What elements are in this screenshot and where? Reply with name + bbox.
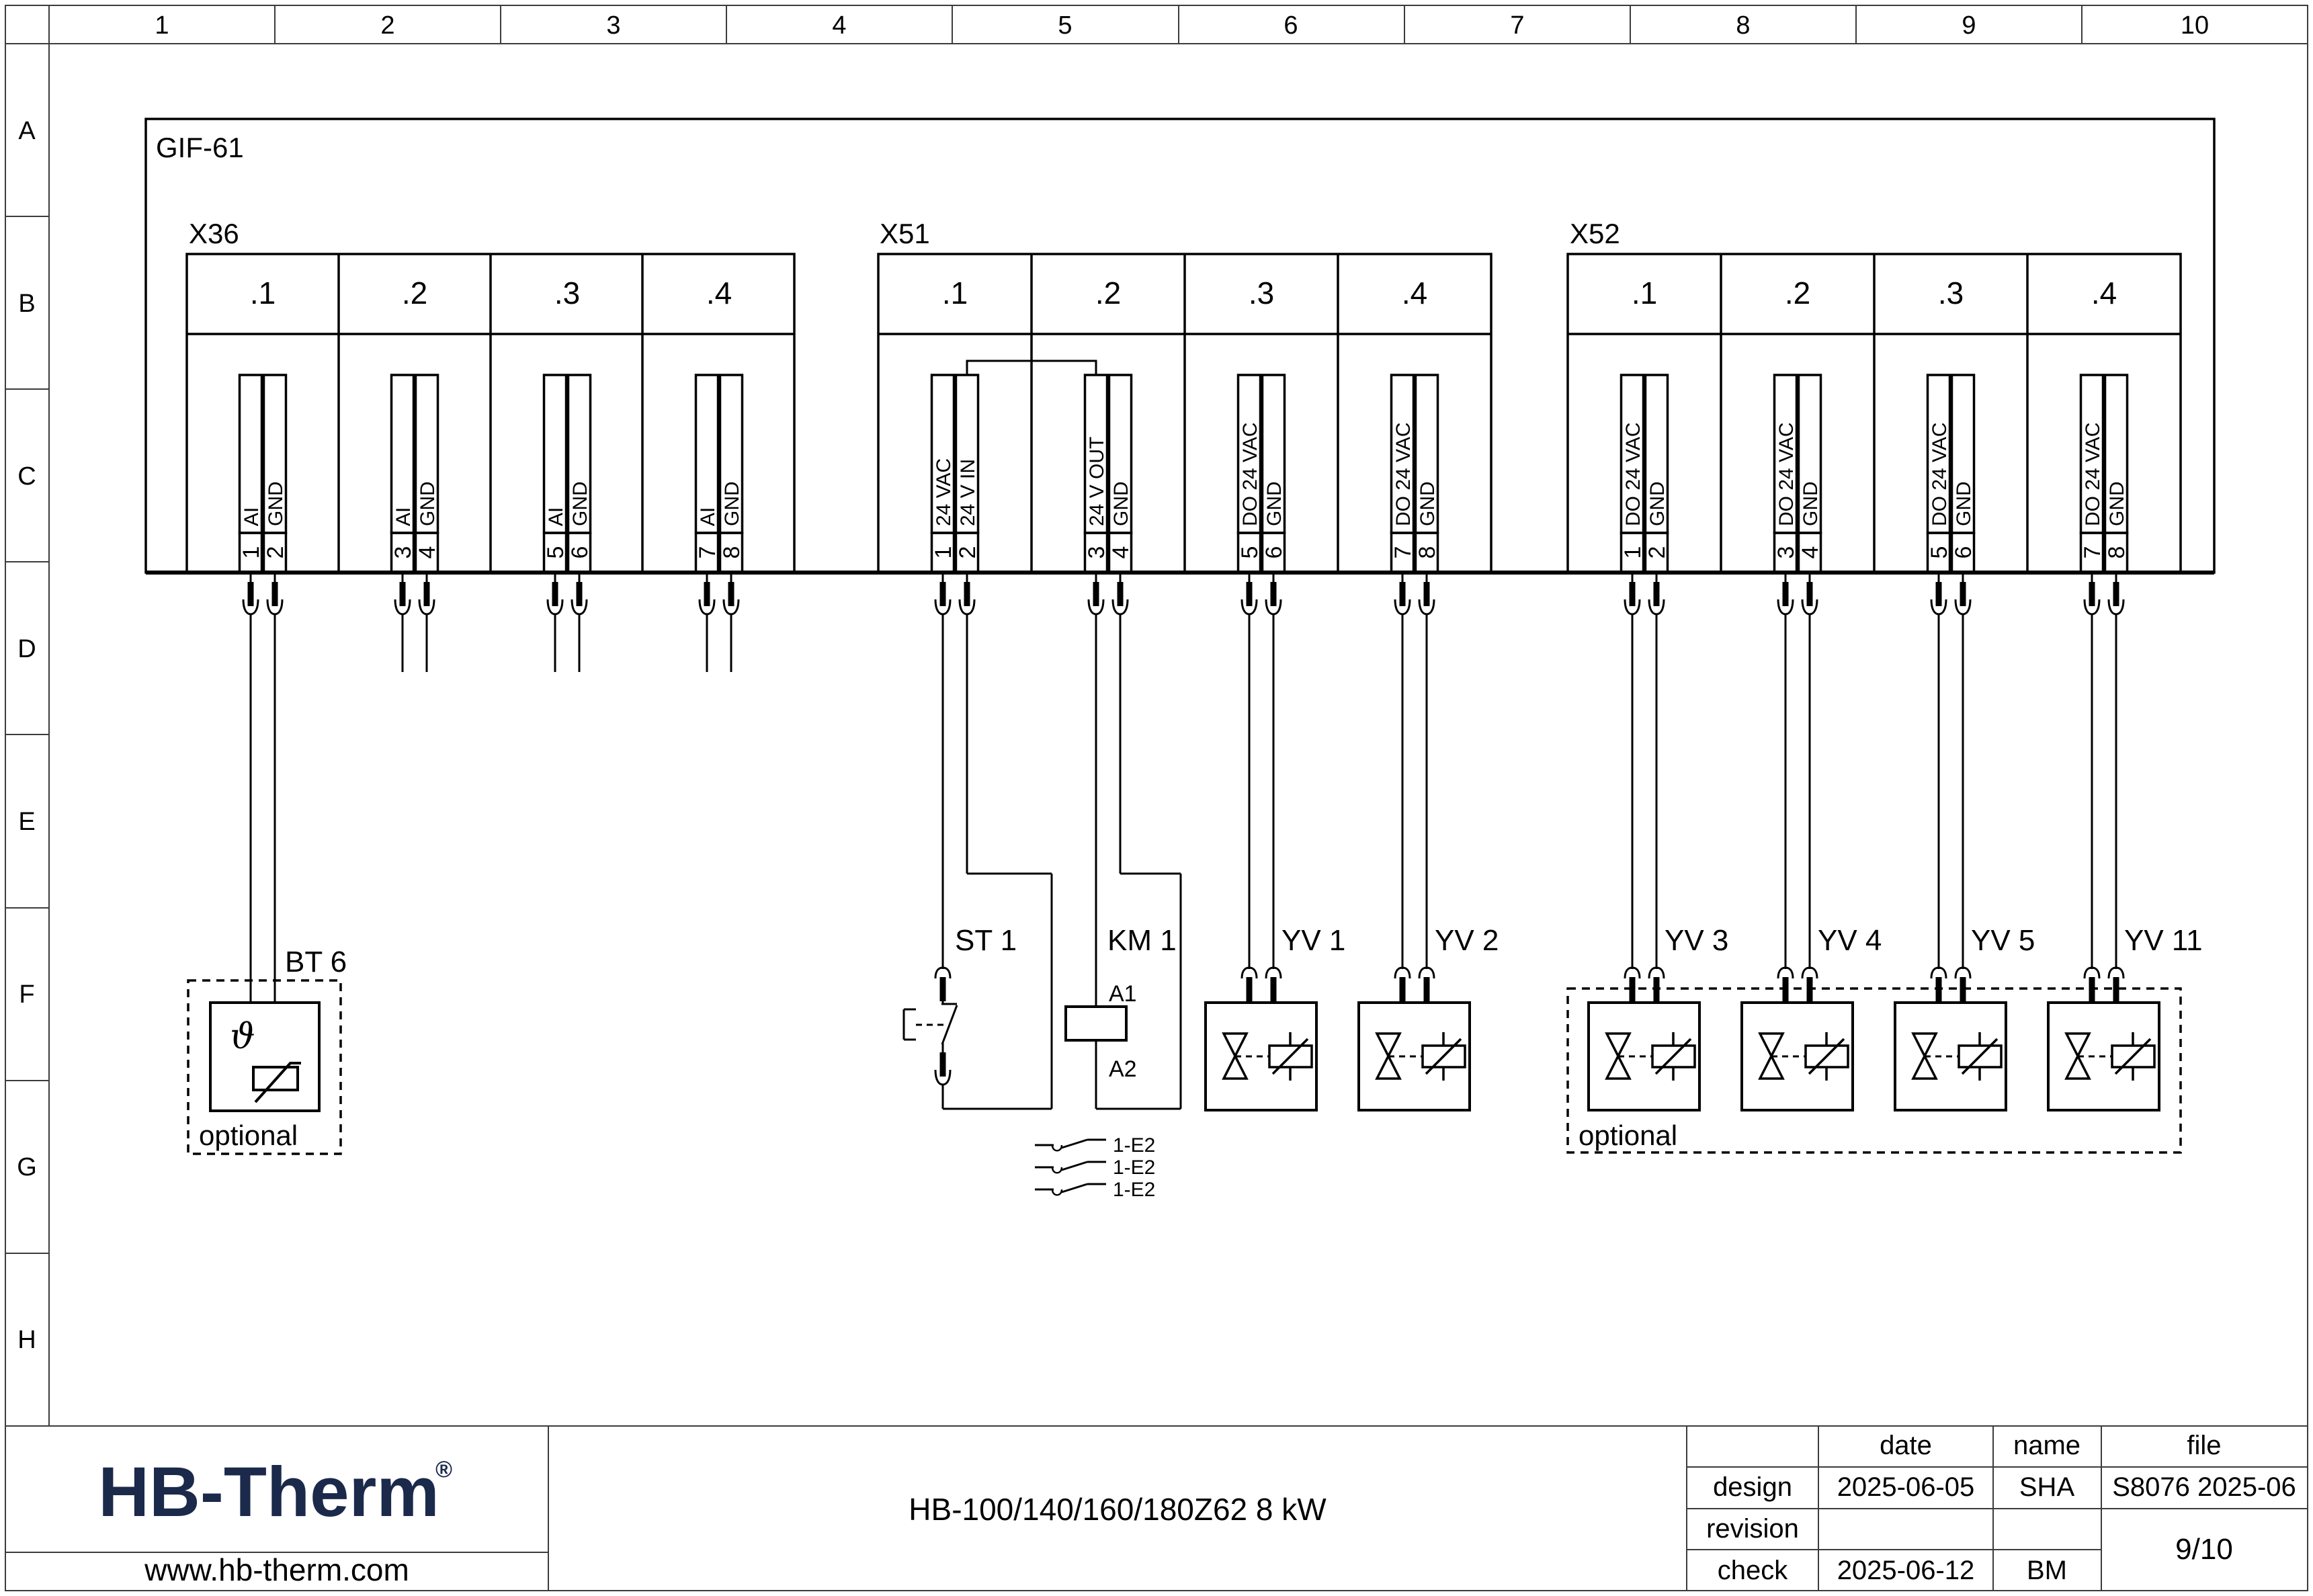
- x51-terminal-block: X51 .1 .2 .3 .4 24 VAC 1 24 V IN 2 24 V …: [878, 218, 1491, 573]
- aux-contact-label: 1-E2: [1113, 1134, 1155, 1157]
- row-label: E: [18, 808, 35, 836]
- svg-text:HB-Therm: HB-Therm: [98, 1453, 439, 1531]
- company-logo: HB-Therm ®: [98, 1453, 452, 1531]
- svg-text:24 VAC: 24 VAC: [933, 458, 955, 526]
- yv5-valve: YV 5: [1895, 924, 2035, 1110]
- x36-section-label: .2: [402, 276, 427, 310]
- st1-label: ST 1: [955, 924, 1017, 957]
- x36-section-label: .3: [554, 276, 580, 310]
- x51-section-label: .4: [1402, 276, 1427, 310]
- svg-text:YV 2: YV 2: [1435, 924, 1499, 957]
- revision-label: revision: [1706, 1514, 1799, 1544]
- svg-text:GND: GND: [265, 481, 287, 526]
- x36-terminal-block: X36 .1 .2 .3 .4 AI 1 GND 2 AI 3 GND 4 AI…: [187, 218, 794, 573]
- svg-text:2: 2: [1644, 546, 1670, 559]
- svg-text:5: 5: [543, 546, 569, 559]
- page-number: 9/10: [2175, 1533, 2233, 1566]
- x52-terminal-block: X52 .1 .2 .3 .4 DO 24 VAC 1 GND 2 DO 24 …: [1568, 218, 2181, 573]
- svg-text:YV 5: YV 5: [1971, 924, 2035, 957]
- column-label: 4: [832, 11, 846, 40]
- header-name: name: [2013, 1431, 2080, 1460]
- svg-text:AI: AI: [241, 507, 263, 526]
- aux-contact-label: 1-E2: [1113, 1157, 1155, 1179]
- yv2-valve: YV 2: [1359, 924, 1499, 1110]
- svg-text:7: 7: [2080, 546, 2105, 559]
- svg-text:24 V IN: 24 V IN: [957, 459, 979, 526]
- thermistor-strike: [255, 1063, 301, 1102]
- title-block: HB-Therm ® www.hb-therm.com HB-100/140/1…: [5, 1426, 2308, 1591]
- registered-trademark: ®: [435, 1457, 452, 1482]
- gif61-label: GIF-61: [156, 132, 244, 163]
- x52-label: X52: [1570, 218, 1620, 249]
- svg-text:5: 5: [1237, 546, 1263, 559]
- row-label: A: [18, 117, 36, 145]
- svg-text:4: 4: [1798, 546, 1823, 559]
- svg-text:2: 2: [955, 546, 980, 559]
- x36-section-label: .4: [706, 276, 732, 310]
- svg-text:GND: GND: [1110, 481, 1132, 526]
- svg-text:6: 6: [1261, 546, 1287, 559]
- svg-text:1: 1: [239, 546, 264, 559]
- svg-text:DO 24 VAC: DO 24 VAC: [1775, 423, 1798, 527]
- design-name: SHA: [2019, 1472, 2075, 1502]
- wiring-diagram-svg: 1 2 3 4 5 6 7 8 9 10 A B C D E F G H GIF…: [0, 0, 2313, 1596]
- x51-section-label: .1: [942, 276, 968, 310]
- svg-text:GND: GND: [1953, 481, 1975, 526]
- row-label: G: [17, 1153, 37, 1181]
- svg-text:YV 4: YV 4: [1818, 924, 1882, 957]
- wires: [251, 620, 2116, 1109]
- check-label: check: [1718, 1556, 1788, 1585]
- svg-text:DO 24 VAC: DO 24 VAC: [1239, 423, 1261, 527]
- svg-text:8: 8: [719, 546, 745, 559]
- svg-text:GND: GND: [569, 481, 591, 526]
- svg-text:8: 8: [2104, 546, 2130, 559]
- x36-label: X36: [189, 218, 239, 249]
- km1-label: KM 1: [1107, 924, 1177, 957]
- svg-text:GND: GND: [2106, 481, 2128, 526]
- design-label: design: [1713, 1472, 1792, 1502]
- yv4-valve: YV 4: [1742, 924, 1882, 1110]
- column-label: 2: [380, 11, 394, 40]
- svg-text:DO 24 VAC: DO 24 VAC: [1392, 423, 1415, 527]
- gif61-block: GIF-61: [146, 119, 2214, 573]
- svg-text:GND: GND: [1646, 481, 1669, 526]
- column-label: 9: [1962, 11, 1976, 40]
- svg-text:1: 1: [931, 546, 956, 559]
- header-file: file: [2187, 1431, 2221, 1460]
- valves: YV 1 YV 2 YV 3 YV 4 YV 5 YV 11: [1206, 924, 2203, 1110]
- svg-text:GND: GND: [417, 481, 439, 526]
- theta-symbol: ϑ: [230, 1017, 255, 1057]
- column-label: 7: [1510, 11, 1524, 40]
- svg-text:GND: GND: [1800, 481, 1822, 526]
- svg-text:3: 3: [1773, 546, 1799, 559]
- svg-text:4: 4: [415, 546, 440, 559]
- svg-text:6: 6: [567, 546, 593, 559]
- svg-text:DO 24 VAC: DO 24 VAC: [1622, 423, 1644, 527]
- km1-a1-label: A1: [1109, 981, 1137, 1007]
- row-label: F: [19, 980, 34, 1009]
- x52-section-label: .3: [1938, 276, 1964, 310]
- x52-section-label: .1: [1632, 276, 1657, 310]
- row-label: H: [17, 1326, 36, 1354]
- aux-contacts: 1-E2 1-E2 1-E2: [1035, 1134, 1155, 1201]
- yv1-valve: YV 1: [1206, 924, 1345, 1110]
- row-label: B: [18, 290, 35, 318]
- company-website: www.hb-therm.com: [144, 1552, 409, 1587]
- x51-section-label: .2: [1095, 276, 1121, 310]
- svg-text:7: 7: [695, 546, 720, 559]
- bt6-sensor: optional BT 6 ϑ: [188, 946, 347, 1154]
- column-label: 10: [2181, 11, 2209, 40]
- km1-a2-label: A2: [1109, 1056, 1137, 1082]
- row-label: D: [17, 635, 36, 663]
- x51-label: X51: [880, 218, 930, 249]
- svg-text:24 V OUT: 24 V OUT: [1086, 437, 1108, 526]
- svg-text:AI: AI: [392, 507, 415, 526]
- bus-connectors: [243, 573, 2123, 620]
- svg-text:2: 2: [263, 546, 288, 559]
- check-name: BM: [2027, 1556, 2067, 1585]
- svg-text:8: 8: [1415, 546, 1440, 559]
- svg-text:DO 24 VAC: DO 24 VAC: [2082, 423, 2104, 527]
- st1-switch: ST 1: [904, 924, 1017, 1090]
- svg-text:1: 1: [1620, 546, 1646, 559]
- svg-text:AI: AI: [545, 507, 567, 526]
- svg-text:DO 24 VAC: DO 24 VAC: [1929, 423, 1951, 527]
- x51-section-label: .3: [1249, 276, 1274, 310]
- design-file: S8076 2025-06: [2112, 1472, 2296, 1502]
- x36-section-label: .1: [250, 276, 276, 310]
- svg-text:YV 3: YV 3: [1665, 924, 1728, 957]
- check-date: 2025-06-12: [1837, 1556, 1975, 1585]
- x52-section-label: .2: [1785, 276, 1810, 310]
- column-label: 8: [1736, 11, 1750, 40]
- x52-section-label: .4: [2091, 276, 2117, 310]
- aux-contact-label: 1-E2: [1113, 1179, 1155, 1201]
- svg-text:YV 1: YV 1: [1281, 924, 1345, 957]
- design-date: 2025-06-05: [1837, 1472, 1975, 1502]
- bt6-label: BT 6: [285, 946, 347, 978]
- column-label: 3: [606, 11, 620, 40]
- optional-label-left: optional: [199, 1120, 298, 1151]
- column-label: 5: [1058, 11, 1072, 40]
- header-date: date: [1880, 1431, 1932, 1460]
- svg-text:AI: AI: [697, 507, 719, 526]
- svg-text:GND: GND: [721, 481, 743, 526]
- svg-text:GND: GND: [1417, 481, 1439, 526]
- optional-label-right: optional: [1579, 1120, 1677, 1151]
- svg-text:7: 7: [1390, 546, 1416, 559]
- svg-text:GND: GND: [1263, 481, 1286, 526]
- svg-text:6: 6: [1951, 546, 1976, 559]
- schematic-page: 1 2 3 4 5 6 7 8 9 10 A B C D E F G H GIF…: [0, 0, 2313, 1596]
- yv3-valve: YV 3: [1589, 924, 1728, 1110]
- svg-text:3: 3: [1084, 546, 1109, 559]
- svg-text:5: 5: [1927, 546, 1952, 559]
- document-title: HB-100/140/160/180Z62 8 kW: [909, 1492, 1327, 1527]
- row-label: C: [17, 462, 36, 491]
- svg-text:4: 4: [1108, 546, 1134, 559]
- yv11-valve: YV 11: [2048, 924, 2203, 1110]
- svg-text:3: 3: [390, 546, 416, 559]
- svg-text:YV 11: YV 11: [2124, 924, 2203, 957]
- column-label: 6: [1284, 11, 1298, 40]
- column-label: 1: [155, 11, 169, 40]
- km1-contactor: KM 1 A1 A2: [1066, 924, 1177, 1082]
